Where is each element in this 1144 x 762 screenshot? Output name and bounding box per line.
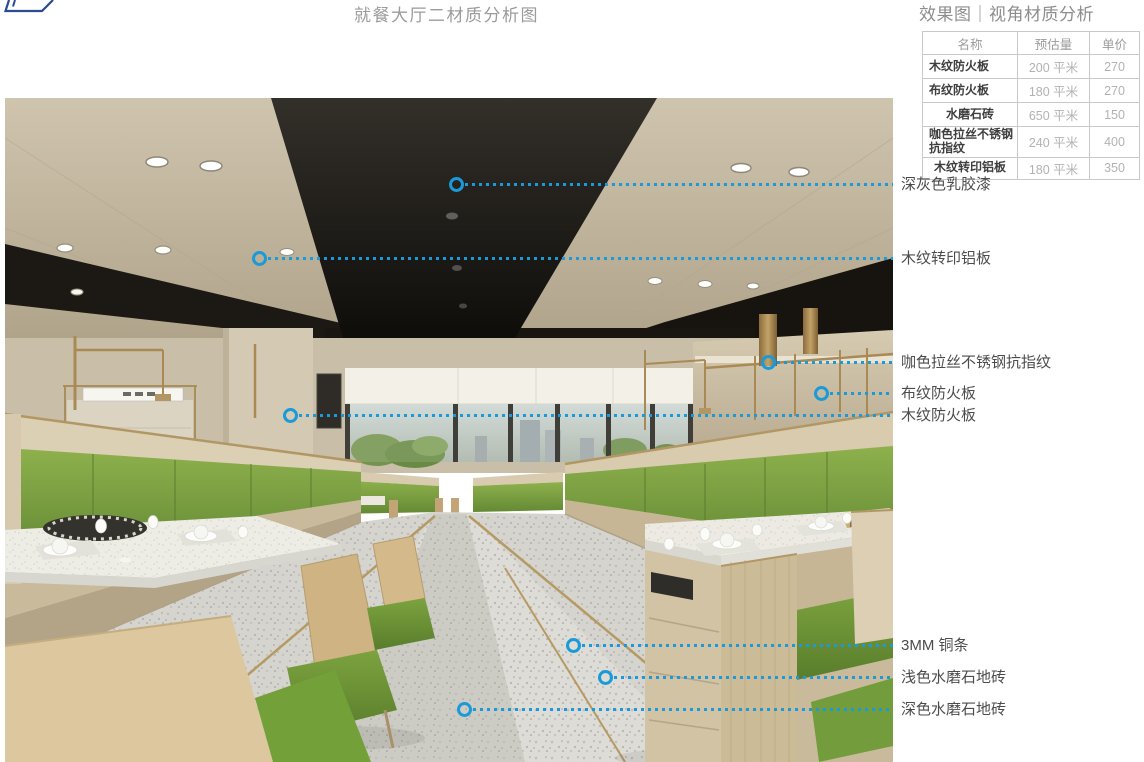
table-cell-qty: 650 平米 xyxy=(1018,103,1090,127)
table-cell-price: 400 xyxy=(1090,127,1140,158)
table-row: 布纹防火板180 平米270 xyxy=(923,79,1140,103)
callout-label: 浅色水磨石地砖 xyxy=(901,670,1006,685)
table-cell-qty: 180 平米 xyxy=(1018,79,1090,103)
callout-marker-icon xyxy=(761,355,776,370)
materials-col-header: 名称 xyxy=(923,32,1018,55)
callout-dotted-line xyxy=(268,257,893,260)
materials-col-header: 单价 xyxy=(1090,32,1140,55)
brass-cylinder xyxy=(803,308,818,354)
table-cell-price: 350 xyxy=(1090,157,1140,179)
table-row: 咖色拉丝不锈钢抗指纹240 平米400 xyxy=(923,127,1140,158)
callout-dotted-line xyxy=(299,414,893,417)
wall-niche xyxy=(317,374,341,428)
materials-table: 名称预估量单价 木纹防火板200 平米270布纹防火板180 平米270水磨石砖… xyxy=(922,31,1140,180)
callout-label: 木纹防火板 xyxy=(901,408,976,423)
callout-marker-icon xyxy=(283,408,298,423)
table-cell-price: 270 xyxy=(1090,55,1140,79)
logo-mark-icon xyxy=(2,0,56,14)
table-cell-name: 木纹防火板 xyxy=(923,55,1018,79)
dining-table-right xyxy=(615,508,893,762)
page: 就餐大厅二材质分析图 效果图｜视角材质分析 名称预估量单价 木纹防火板200 平… xyxy=(0,0,1144,762)
callout-marker-icon xyxy=(814,386,829,401)
table-cell-qty: 200 平米 xyxy=(1018,55,1090,79)
table-cell-qty: 180 平米 xyxy=(1018,157,1090,179)
table-cell-name: 水磨石砖 xyxy=(923,103,1018,127)
callout-label: 深色水磨石地砖 xyxy=(901,702,1006,717)
callout-dotted-line xyxy=(582,644,893,647)
table-cell-qty: 240 平米 xyxy=(1018,127,1090,158)
table-row: 木纹防火板200 平米270 xyxy=(923,55,1140,79)
table-cell-name: 咖色拉丝不锈钢抗指纹 xyxy=(923,127,1018,158)
table-cell-price: 150 xyxy=(1090,103,1140,127)
interior-rendering xyxy=(5,98,893,762)
materials-table-header: 名称预估量单价 xyxy=(923,32,1140,55)
callout-label: 咖色拉丝不锈钢抗指纹 xyxy=(901,355,1051,370)
page-title: 就餐大厅二材质分析图 xyxy=(354,1,539,26)
callout-dotted-line xyxy=(830,392,893,395)
window-shade-band xyxy=(345,368,693,404)
panel-title: 效果图｜视角材质分析 xyxy=(919,0,1094,25)
lamp-head xyxy=(155,394,171,401)
interior-rendering-scene xyxy=(5,98,893,762)
callout-marker-icon xyxy=(566,638,581,653)
callout-label: 3MM 铜条 xyxy=(901,638,969,653)
callout-marker-icon xyxy=(449,177,464,192)
materials-col-header: 预估量 xyxy=(1018,32,1090,55)
callout-label: 深灰色乳胶漆 xyxy=(901,177,991,192)
table-row: 水磨石砖650 平米150 xyxy=(923,103,1140,127)
callout-label: 木纹转印铝板 xyxy=(901,251,991,266)
table-cell-price: 270 xyxy=(1090,79,1140,103)
table-cell-name: 布纹防火板 xyxy=(923,79,1018,103)
callout-marker-icon xyxy=(598,670,613,685)
wood-grain-base xyxy=(721,554,797,762)
callout-marker-icon xyxy=(252,251,267,266)
callout-label: 布纹防火板 xyxy=(901,386,976,401)
hotpot-grill xyxy=(43,515,147,541)
callout-dotted-line xyxy=(465,183,893,186)
callout-dotted-line xyxy=(777,361,893,364)
callout-dotted-line xyxy=(473,708,893,711)
materials-table-body: 木纹防火板200 平米270布纹防火板180 平米270水磨石砖650 平米15… xyxy=(923,55,1140,180)
booth-partition xyxy=(851,508,893,644)
callout-dotted-line xyxy=(614,676,893,679)
callout-marker-icon xyxy=(457,702,472,717)
